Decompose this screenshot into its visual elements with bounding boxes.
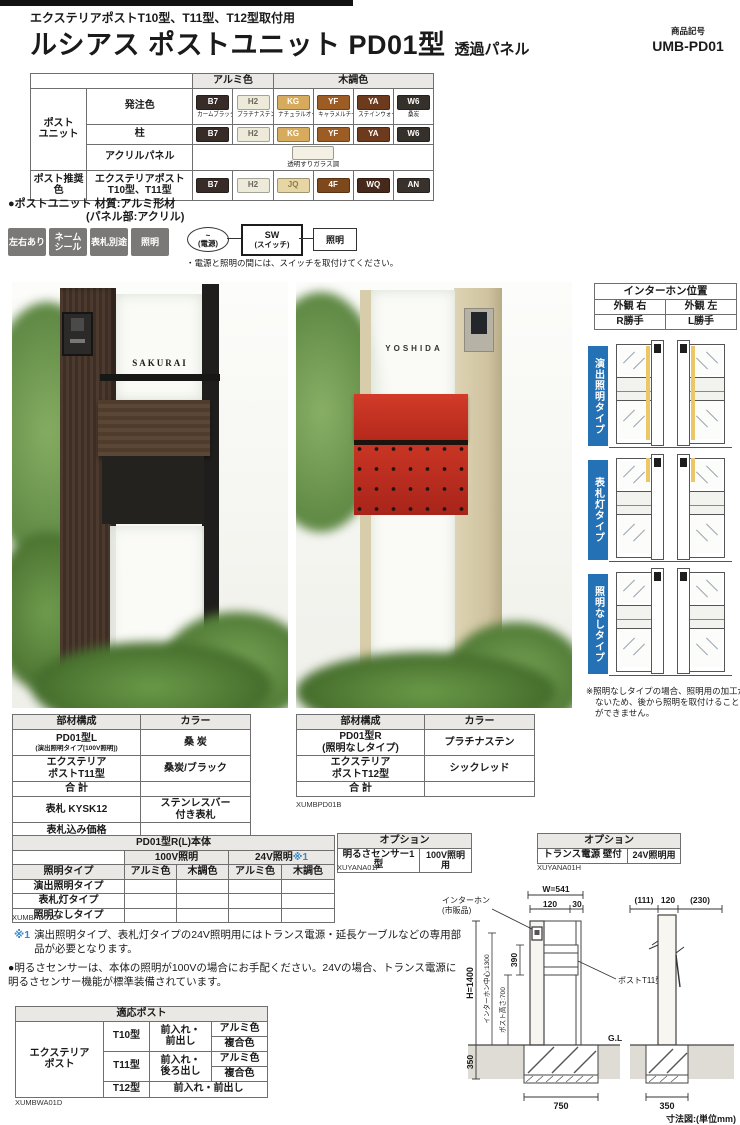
diagrams-no-light: [614, 568, 727, 676]
wood-mailbox: [98, 400, 210, 456]
col-100v: 100V照明: [125, 850, 229, 865]
option-name: トランス電源 壁付: [538, 848, 628, 863]
intercom-mark: [654, 344, 661, 353]
color-cell: B7: [193, 124, 233, 144]
row-nameplate-light: 表札灯タイプ: [13, 894, 125, 909]
part-color: プラチナステン: [425, 730, 535, 756]
col-parts: 部材構成: [297, 715, 425, 730]
access-t11: 前入れ・ 後ろ出し: [150, 1051, 212, 1081]
red-mailbox-door: [354, 445, 468, 515]
option-transformer-code: XUYANA01H: [537, 863, 581, 872]
r-hand-cell: R勝手: [595, 315, 666, 330]
color-chip: H2: [237, 127, 270, 142]
finish: アルミ色: [212, 1051, 268, 1066]
part-name: 合 計: [13, 782, 141, 797]
color-cell: YFキャラメルチーク: [313, 88, 353, 124]
view-right-cell: 外観 右: [595, 300, 666, 315]
parts-right-code: XUMBPD01B: [296, 800, 341, 809]
dim-30: 30: [572, 899, 582, 909]
col-aluminum: アルミ色: [125, 865, 177, 880]
color-chip: B7: [196, 178, 229, 193]
dim-h1400: H=1400: [465, 967, 475, 999]
feature-badge: 照明: [131, 228, 169, 256]
color-name: ナチュラルオーク: [278, 111, 309, 118]
compat-table-code: XUMBWA01D: [15, 1098, 62, 1107]
feature-badges: 左右あり ネーム シール 表札別途 照明: [8, 228, 169, 256]
col-wood: 木調色: [177, 865, 229, 880]
intercom-unit: [62, 312, 93, 356]
intercom-unit: [464, 308, 494, 352]
color-chip: YF: [317, 127, 350, 142]
product-code-label: 商品記号: [640, 25, 736, 37]
color-name: カームブラック: [197, 111, 228, 118]
post-diagram: [614, 340, 666, 448]
row-label-acrylic: アクリルパネル: [87, 144, 193, 170]
nameplate-bar: [100, 374, 220, 381]
type-label-nameplate-light: 表札灯タイプ: [588, 460, 608, 560]
intercom-mark: [654, 458, 661, 467]
color-cell: W6: [393, 124, 433, 144]
dim-post-height: ポスト高さ:700: [498, 987, 507, 1033]
color-group-wood: 木調色: [273, 74, 433, 89]
no-light-note: ※照明なしタイプの場合、照明用の加工がないため、後から照明を取付けることができま…: [586, 686, 740, 719]
option-sensor-code: XUYANA01F: [337, 863, 380, 872]
option-table-transformer: オプション トランス電源 壁付24V照明用: [537, 833, 681, 864]
parts-table-left: 部材構成カラー PD01型L(演出照明タイプ[100V照明])桑 炭 エクステリ…: [12, 714, 251, 840]
compat-group: エクステリア ポスト: [16, 1021, 104, 1097]
part-name: 表札 KYSK12: [13, 797, 141, 823]
part-name: 合 計: [297, 782, 425, 797]
acrylic-chip: [292, 146, 334, 160]
acrylic-chip-label: 透明すりガラス調: [195, 161, 431, 168]
intercom-mark: [680, 458, 687, 467]
dim-350: 350: [465, 1055, 475, 1069]
dim-230: (230): [690, 895, 710, 905]
color-name: キャラメルチーク: [318, 111, 349, 118]
frosted-panel-top: [116, 294, 202, 400]
view-left-cell: 外観 左: [666, 300, 737, 315]
option-use: 100V照明用: [420, 848, 472, 873]
part-name: PD01型L(演出照明タイプ[100V照明]): [13, 730, 141, 756]
col-lighting-type: 照明タイプ: [13, 865, 125, 880]
row-group-post-unit: ポスト ユニット: [31, 88, 87, 170]
product-code: UMB-PD01: [640, 38, 736, 54]
dim-111: (111): [635, 895, 654, 905]
l-hand-cell: L勝手: [666, 315, 737, 330]
post-diagram-mirrored: [675, 340, 727, 448]
note-24v: ※1 演出照明タイプ、表札灯タイプの24V照明用にはトランス電源・延長ケーブルな…: [14, 928, 462, 956]
color-chip: H2: [237, 95, 270, 110]
intercom-position-table: インターホン位置 外観 右 外観 左 R勝手 L勝手: [594, 283, 737, 330]
color-cell: H2プラチナステン: [233, 88, 273, 124]
color-cell: YAステインウォールナット: [353, 88, 393, 124]
product-photo-left: SAKURAI: [12, 282, 288, 708]
color-chip: KG: [277, 127, 310, 142]
color-chip: B7: [196, 127, 229, 142]
option-title: オプション: [538, 834, 681, 849]
post-diagram-mirrored: [675, 568, 727, 676]
page-title-suffix: 透過パネル: [455, 38, 530, 59]
switch-sublabel: (スイッチ): [255, 241, 290, 249]
post-diagram: [614, 454, 666, 562]
color-chip: W6: [397, 95, 430, 110]
page-edge-bar: [0, 0, 353, 6]
col-24v: 24V照明※1: [229, 850, 335, 865]
black-panel: [102, 456, 204, 524]
part-color: 桑炭/ブラック: [141, 756, 251, 782]
access-t10: 前入れ・ 前出し: [150, 1021, 212, 1051]
note-sensor: ●明るさセンサーは、本体の照明が100Vの場合にお手配ください。24Vの場合、ト…: [8, 961, 460, 989]
model-t11: T11型: [104, 1051, 150, 1081]
color-cell: W6桑炭: [393, 88, 433, 124]
col-color: カラー: [425, 715, 535, 730]
catalog-page: エクステリアポストT10型、T11型、T12型取付用 ルシアス ポストユニット …: [0, 0, 740, 1125]
dim-350b: 350: [659, 1101, 674, 1111]
feature-badge: ネーム シール: [49, 228, 87, 256]
dim-120: 120: [543, 899, 557, 909]
nameplate-text: YOSHIDA: [374, 344, 454, 353]
color-group-aluminum: アルミ色: [193, 74, 273, 89]
wire-line: [299, 238, 313, 239]
compatible-post-table: 適応ポスト エクステリア ポスト T10型 前入れ・ 前出し アルミ色 複合色 …: [15, 1006, 268, 1098]
part-color: [425, 782, 535, 797]
model-t10: T10型: [104, 1021, 150, 1051]
red-mailbox-top: [354, 394, 468, 440]
color-cell: YF: [313, 124, 353, 144]
body-table-title: PD01型R(L)本体: [13, 836, 335, 851]
color-chip: H2: [237, 178, 270, 193]
product-photo-right: YOSHIDA: [296, 282, 572, 708]
color-cell: H2: [233, 124, 273, 144]
feature-badge: 表札別途: [90, 228, 128, 256]
intercom-table-title: インターホン位置: [595, 284, 737, 300]
color-chip: B7: [196, 95, 229, 110]
color-name: 桑炭: [398, 111, 429, 118]
power-label: (電源): [198, 240, 218, 248]
compat-title: 適応ポスト: [16, 1007, 268, 1022]
color-cell: B7: [193, 170, 233, 200]
switch-box: SW (スイッチ): [241, 224, 303, 256]
type-label-stage-lighting: 演出照明タイプ: [588, 346, 608, 446]
part-name: PD01型R (照明なしタイプ): [297, 730, 425, 756]
color-name: ステインウォールナット: [358, 111, 389, 118]
dim-120b: 120: [661, 895, 675, 905]
color-cell: YA: [353, 124, 393, 144]
model-t12: T12型: [104, 1081, 150, 1097]
wire-line: [227, 238, 241, 239]
finish: 複合色: [212, 1036, 268, 1051]
color-chip: YA: [357, 127, 390, 142]
diagrams-stage-lighting: [614, 340, 727, 448]
option-use: 24V照明用: [628, 848, 681, 863]
col-aluminum: アルミ色: [229, 865, 282, 880]
wiring-note: ・電源と照明の間には、スイッチを取付けてください。: [186, 257, 398, 269]
body-table-code: XUMBPD01C: [12, 913, 58, 922]
note-mark: ※1: [14, 928, 30, 956]
option-title: オプション: [338, 834, 472, 849]
row-label-order-color: 発注色: [87, 88, 193, 124]
color-chip: KG: [277, 95, 310, 110]
color-table: アルミ色 木調色 ポスト ユニット 発注色 B7カームブラック H2プラチナステ…: [30, 73, 434, 201]
product-code-block: 商品記号 UMB-PD01: [640, 25, 736, 54]
post-diagram-mirrored: [675, 454, 727, 562]
nameplate-text: SAKURAI: [116, 358, 204, 368]
intercom-mark: [654, 572, 661, 581]
intercom-label: インターホン: [442, 896, 490, 905]
color-cell: B7カームブラック: [193, 88, 233, 124]
part-name: エクステリア ポストT11型: [13, 756, 141, 782]
color-name: プラチナステン: [238, 111, 269, 118]
dim-750: 750: [553, 1101, 568, 1111]
dimension-caption: 寸法図:(単位mm): [666, 1113, 736, 1124]
color-cell: H2: [233, 170, 273, 200]
post-diagram: [614, 568, 666, 676]
feature-badge: 左右あり: [8, 228, 46, 256]
row-label-pillar: 柱: [87, 124, 193, 144]
power-source-symbol: ~ (電源): [187, 227, 229, 252]
color-chip: JQ: [277, 178, 310, 193]
color-cell: 4F: [313, 170, 353, 200]
material-note-line2: (パネル部:アクリル): [86, 208, 184, 224]
part-color: シックレッド: [425, 756, 535, 782]
gl-label: G.L: [608, 1033, 622, 1043]
light-box: 照明: [313, 228, 357, 251]
color-chip: 4F: [317, 178, 350, 193]
dim-intercom-center: インターホン中心:1300: [482, 954, 491, 1024]
col-wood: 木調色: [282, 865, 335, 880]
color-chip: YF: [317, 95, 350, 110]
color-chip: YA: [357, 95, 390, 110]
color-chip: WQ: [357, 178, 390, 193]
part-color: [141, 782, 251, 797]
dimension-drawing: インターホン (市販品) ポストT11型 W=541 120 30 H=1400…: [430, 883, 740, 1125]
intercom-mark: [680, 344, 687, 353]
page-title: ルシアス ポストユニット PD01型: [30, 23, 446, 62]
part-name: エクステリア ポストT12型: [297, 756, 425, 782]
diagrams-nameplate-light: [614, 454, 727, 562]
type-label-no-light: 照明なしタイプ: [588, 574, 608, 674]
access-t12: 前入れ・前出し: [150, 1081, 268, 1097]
dim-390: 390: [509, 953, 519, 967]
color-cell: JQ: [273, 170, 313, 200]
color-cell: WQ: [353, 170, 393, 200]
finish: アルミ色: [212, 1021, 268, 1036]
col-parts: 部材構成: [13, 715, 141, 730]
post-type-label: ポストT11型: [618, 976, 663, 985]
row-stage-lighting: 演出照明タイプ: [13, 879, 125, 894]
dim-w541: W=541: [542, 884, 569, 894]
color-chip: W6: [397, 127, 430, 142]
color-chip: AN: [397, 178, 430, 193]
intercom-sublabel: (市販品): [442, 905, 472, 915]
finish: 複合色: [212, 1066, 268, 1081]
parts-table-right: 部材構成カラー PD01型R (照明なしタイプ)プラチナステン エクステリア ポ…: [296, 714, 535, 797]
color-cell: KGナチュラルオーク: [273, 88, 313, 124]
part-color: 桑 炭: [141, 730, 251, 756]
part-color: ステンレスバー 付き表札: [141, 797, 251, 823]
color-cell: AN: [393, 170, 433, 200]
col-color: カラー: [141, 715, 251, 730]
body-price-table: PD01型R(L)本体 100V照明 24V照明※1 照明タイプ アルミ色 木調…: [12, 835, 335, 923]
intercom-mark: [680, 572, 687, 581]
acrylic-cell: 透明すりガラス調: [193, 144, 434, 170]
color-cell: KG: [273, 124, 313, 144]
